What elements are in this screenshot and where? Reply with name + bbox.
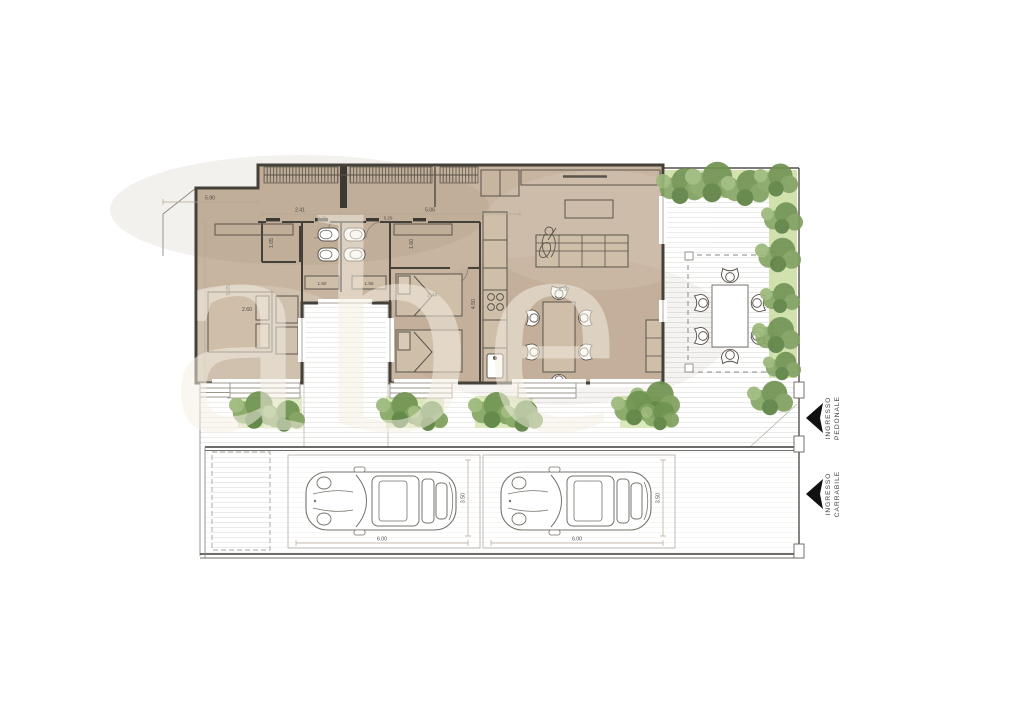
- floorplan-page: 5.90 2.41 5.06 0.20 0.20 1.50 1.50 1.05 …: [0, 0, 1018, 720]
- pedestrian-entrance-label-1: INGRESSO: [825, 397, 832, 440]
- gate-post: [794, 436, 804, 452]
- driveway-entrance-label-2: CARRABILE: [834, 471, 841, 517]
- watermark-text: abe: [170, 155, 630, 498]
- dim-stall2-w: 6.00: [572, 537, 582, 543]
- outdoor-person: [721, 268, 738, 282]
- outdoor-person: [694, 294, 708, 311]
- floor-plan-svg: 5.90 2.41 5.06 0.20 0.20 1.50 1.50 1.05 …: [0, 0, 1018, 720]
- outdoor-person: [721, 349, 738, 363]
- outdoor-person: [694, 327, 708, 344]
- dim-stall1-w: 6.00: [377, 537, 387, 543]
- pedestrian-gate: [794, 382, 804, 398]
- driveway-gate: [794, 544, 804, 558]
- driveway-entrance-label-1: INGRESSO: [825, 473, 832, 516]
- outdoor-table: [712, 285, 748, 347]
- dim-stall2-d: 3.50: [656, 493, 662, 503]
- wall-bench: [646, 320, 663, 372]
- pedestrian-entrance-label-2: PEDONALE: [834, 396, 841, 440]
